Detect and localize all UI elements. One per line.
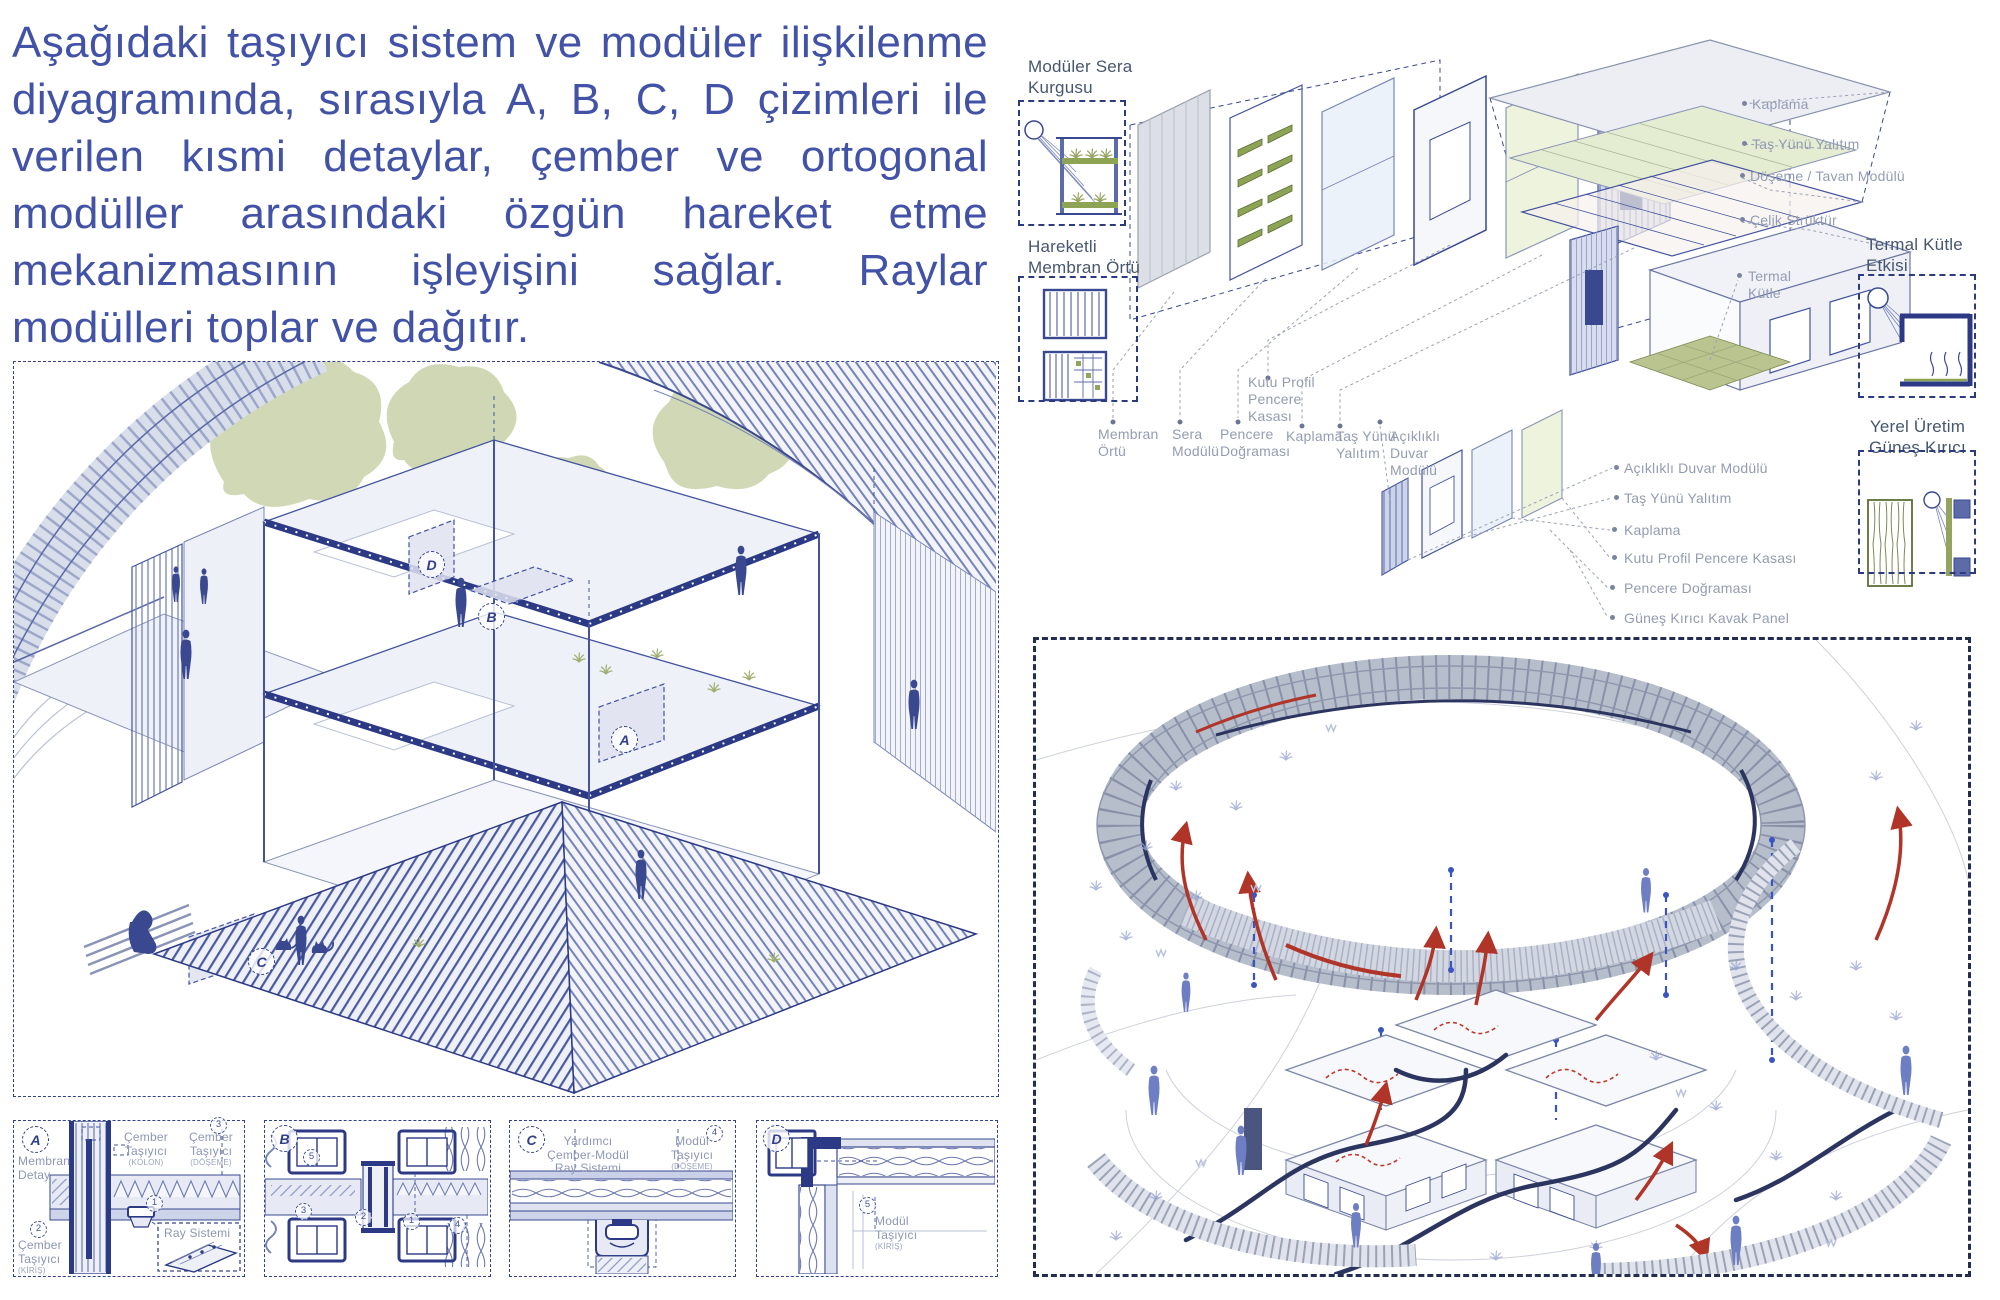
exploded-axonometric — [1010, 30, 1990, 640]
bottom-leader-dots — [1111, 376, 1383, 429]
label-tas-yunu-right: Taş Yünü Yalıtım — [1752, 136, 1859, 153]
legend-membran-title: Hareketli Membran Örtü — [1028, 236, 1148, 278]
detail-b-marker: B — [271, 1125, 298, 1152]
num-5: 5 — [303, 1149, 320, 1166]
leader-dot — [1742, 141, 1747, 146]
leader-dot — [1740, 217, 1745, 222]
list-gunes-kirici: Güneş Kırıcı Kavak Panel — [1624, 610, 1789, 627]
num-1: 1 — [146, 1195, 163, 1212]
label-membran-detay: Membran Detay — [18, 1155, 82, 1182]
axo-marker-c: C — [248, 948, 275, 975]
site-diagram-frame — [1033, 637, 1971, 1277]
list-acikli-duvar: Açıklıklı Duvar Modülü — [1624, 460, 1768, 477]
leader-dot — [1610, 585, 1615, 590]
num-2: 2 — [355, 1209, 372, 1226]
leader-dot — [1610, 615, 1615, 620]
num-5: 5 — [859, 1197, 876, 1214]
detail-b: B 5 3 2 1 4 — [264, 1120, 491, 1277]
leader-dot — [1612, 527, 1617, 532]
leader-dot — [1737, 273, 1742, 278]
label-acikli-duvar-bottom: Açıklıklı Duvar Modülü — [1390, 428, 1456, 479]
label-membran-ortu: Membran Örtü — [1098, 426, 1164, 460]
list-kutu-profil: Kutu Profil Pencere Kasası — [1624, 550, 1797, 567]
num-1: 1 — [403, 1213, 420, 1230]
detail-d-marker: D — [763, 1125, 790, 1152]
detail-d-drawing — [757, 1121, 995, 1274]
num-2: 2 — [30, 1221, 47, 1238]
legend-sera-title: Modüler Sera Kurgusu — [1028, 56, 1148, 98]
legend-termal-box — [1858, 274, 1976, 398]
label-celik-struktur: Çelik Strüktür — [1750, 212, 1837, 229]
detail-c: C Yardımcı Çember-Modül Ray Sistemi Modü… — [509, 1120, 736, 1277]
label-sera-modulu: Sera Modülü — [1172, 426, 1226, 460]
legend-yerel-box — [1858, 450, 1976, 574]
detail-a-marker: A — [22, 1126, 49, 1153]
detail-b-drawing — [265, 1121, 488, 1274]
axo-marker-b: B — [478, 603, 505, 630]
left-axonometric-drawing — [14, 362, 996, 1094]
num-3: 3 — [295, 1203, 312, 1220]
leader-dot — [1740, 173, 1745, 178]
label-cember-doseme: Çember Taşıyıcı(DÖŞEME) — [180, 1131, 242, 1167]
module-cluster — [1244, 990, 1706, 1230]
leader-dot — [1614, 465, 1619, 470]
label-doseme-tavan: Döşeme / Tavan Modülü — [1750, 168, 1905, 185]
axo-marker-d: D — [418, 551, 445, 578]
label-kutu-profil: Kutu Profil Pencere Kasası — [1248, 374, 1324, 425]
detail-a: A Membran Detay Çember Taşıyıcı(KOLON) Ç… — [13, 1120, 245, 1277]
leader-dot — [1614, 495, 1619, 500]
list-pencere: Pencere Doğraması — [1624, 580, 1752, 597]
num-4: 4 — [706, 1125, 723, 1142]
label-cember-kolon: Çember Taşıyıcı(KOLON) — [116, 1131, 176, 1167]
left-axo-frame — [13, 361, 999, 1097]
legend-membran-box — [1018, 276, 1138, 402]
label-termal-kutle: Termal Kütle — [1748, 268, 1812, 302]
label-kaplama-right: Kaplama — [1752, 96, 1809, 113]
presentation-board: Aşağıdaki taşıyıcı sistem ve modüler ili… — [0, 0, 2000, 1300]
detail-d: D 5 Modül Taşıyıcı(KİRİŞ) — [756, 1120, 998, 1277]
intro-paragraph: Aşağıdaki taşıyıcı sistem ve modüler ili… — [12, 14, 988, 356]
leader-dot — [1742, 101, 1747, 106]
label-modul-tasiyici-kiris: Modül Taşıyıcı(KİRİŞ) — [875, 1215, 939, 1251]
num-4: 4 — [449, 1217, 466, 1234]
list-tas-yunu: Taş Yünü Yalıtım — [1624, 490, 1731, 507]
axo-marker-a: A — [611, 726, 638, 753]
label-yardimci-ray: Yardımcı Çember-Modül Ray Sistemi — [538, 1135, 638, 1176]
label-kaplama-bottom: Kaplama — [1286, 428, 1343, 445]
leader-dot — [1612, 555, 1617, 560]
legend-sera-box — [1018, 100, 1126, 226]
legend-termal-title: Termal Kütle Etkisi — [1866, 234, 1991, 276]
num-3: 3 — [210, 1117, 227, 1134]
circular-site-diagram — [1036, 640, 1968, 1274]
list-kaplama: Kaplama — [1624, 522, 1681, 539]
label-cember-kiris: Çember Taşıyıcı(KİRİŞ) — [18, 1239, 80, 1275]
label-ray-sistemi: Ray Sistemi — [164, 1227, 234, 1241]
